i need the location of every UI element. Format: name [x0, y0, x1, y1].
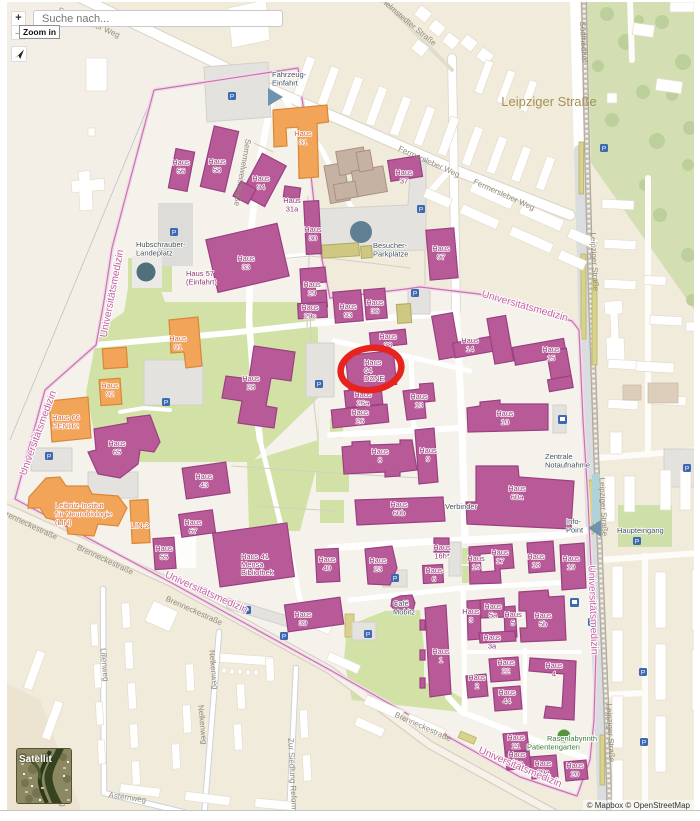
svg-text:P: P	[317, 382, 321, 389]
svg-text:P: P	[602, 146, 606, 153]
svg-text:P: P	[164, 400, 168, 407]
svg-text:Leipziger Straße: Leipziger Straße	[501, 94, 596, 109]
svg-text:P: P	[282, 634, 286, 641]
svg-text:P: P	[685, 466, 689, 473]
svg-text:P: P	[366, 632, 370, 639]
svg-text:P: P	[413, 291, 417, 298]
svg-text:P: P	[47, 454, 51, 461]
svg-text:Verbinder: Verbinder	[445, 502, 478, 511]
svg-text:Haupteingang: Haupteingang	[617, 526, 664, 535]
svg-text:P: P	[642, 740, 646, 747]
svg-text:P: P	[419, 207, 423, 214]
svg-text:P: P	[641, 670, 645, 677]
svg-text:Besucher-Parkplätze: Besucher-Parkplätze	[373, 241, 408, 259]
svg-text:P: P	[230, 94, 234, 101]
svg-text:LIN-2: LIN-2	[131, 521, 149, 530]
svg-text:Haus16h*: Haus16h*	[433, 543, 451, 561]
svg-text:P: P	[393, 576, 397, 583]
svg-text:P: P	[635, 539, 639, 546]
svg-text:Haus 57(Einfahrt): Haus 57(Einfahrt)	[186, 269, 217, 287]
svg-text:Haus 66ZENIT2: Haus 66ZENIT2	[52, 413, 80, 431]
svg-text:P: P	[172, 230, 176, 237]
